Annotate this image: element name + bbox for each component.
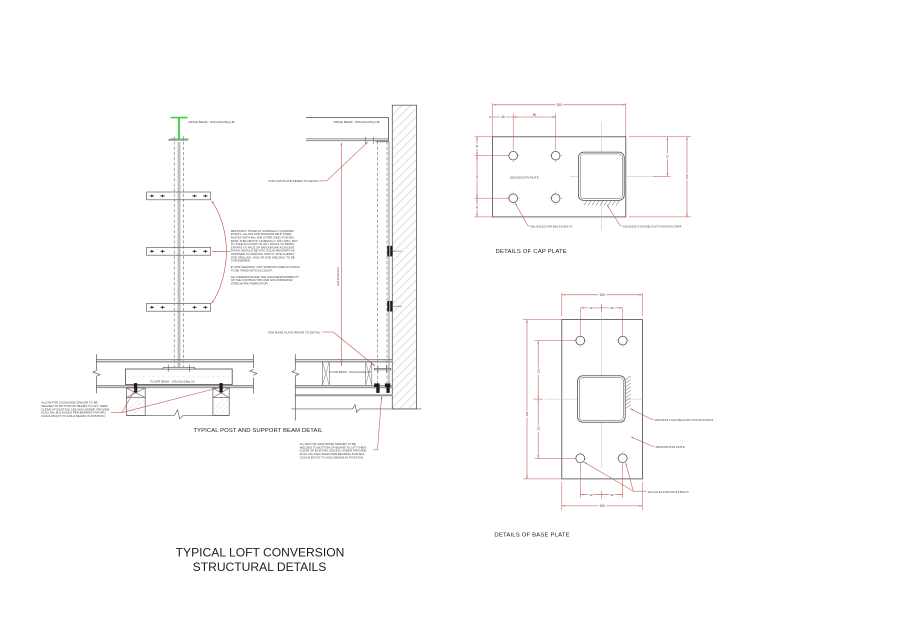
svg-text:100X100X6.3 SHS WELD INTO POSI: 100X100X6.3 SHS WELD INTO POSITION STAFF — [623, 224, 682, 228]
svg-text:FOR CAP PLATE REFER TO DETAIL: FOR CAP PLATE REFER TO DETAIL — [268, 179, 319, 183]
svg-text:150: 150 — [600, 504, 606, 508]
svg-text:40: 40 — [610, 306, 614, 310]
svg-text:90: 90 — [533, 113, 537, 117]
svg-text:300X150X15TH PLATE: 300X150X15TH PLATE — [655, 445, 684, 449]
svg-text:4No HOLES FOR M16 8.8 BOLTS: 4No HOLES FOR M16 8.8 BOLTS — [530, 224, 572, 228]
svg-text:300: 300 — [525, 411, 529, 416]
svg-text:40: 40 — [589, 306, 593, 310]
svg-text:40: 40 — [610, 493, 614, 497]
svg-text:75: 75 — [665, 155, 669, 159]
svg-text:150: 150 — [600, 293, 606, 297]
svg-text:DETAILS OF CAP PLATE: DETAILS OF CAP PLATE — [496, 249, 567, 255]
svg-text:100X100X6.3 SHS WELD INTO POSI: 100X100X6.3 SHS WELD INTO POSITION STAFF — [655, 418, 714, 422]
svg-text:TO BE TAKEN INTO ACCOUNT.: TO BE TAKEN INTO ACCOUNT. — [231, 268, 273, 272]
svg-text:250X150X12TH PLATE: 250X150X12TH PLATE — [510, 175, 539, 179]
svg-text:FLOOR BEAM - 152x152x23kg UC: FLOOR BEAM - 152x152x23kg UC — [329, 370, 371, 374]
svg-text:40: 40 — [501, 115, 505, 119]
svg-text:80: 80 — [475, 175, 479, 179]
svg-text:4No HOLES FOR M16 8.8 BOLTS: 4No HOLES FOR M16 8.8 BOLTS — [648, 490, 689, 494]
svg-text:CONSIDERED.: CONSIDERED. — [231, 259, 251, 263]
svg-text:wall dimension: wall dimension — [336, 267, 340, 286]
svg-text:RIDGE BEAM - 203x102x23kg UB: RIDGE BEAM - 203x102x23kg UB — [189, 120, 235, 124]
svg-text:FOR BASE PLATE REFER TO DETAIL: FOR BASE PLATE REFER TO DETAIL — [268, 330, 321, 334]
svg-text:35: 35 — [475, 144, 479, 148]
svg-text:TYPICAL POST AND SUPPORT BEAM: TYPICAL POST AND SUPPORT BEAM DETAIL — [193, 428, 323, 434]
svg-text:DETAILS OF BASE PLATE: DETAILS OF BASE PLATE — [494, 533, 569, 539]
svg-text:FLOOR BEAM - 152x152x23kg UC: FLOOR BEAM - 152x152x23kg UC — [150, 379, 195, 383]
svg-text:110: 110 — [536, 368, 540, 373]
svg-text:40: 40 — [589, 493, 593, 497]
svg-text:250: 250 — [557, 103, 563, 107]
svg-text:110: 110 — [536, 426, 540, 431]
svg-text:STEELWORK FABRICATOR.: STEELWORK FABRICATOR. — [231, 281, 269, 285]
svg-text:STRUCTURAL DETAILS: STRUCTURAL DETAILS — [193, 560, 327, 574]
svg-text:150: 150 — [685, 174, 689, 179]
svg-text:RIDGE BEAM - 203x102x23kg UB: RIDGE BEAM - 203x102x23kg UB — [334, 120, 380, 124]
svg-text:35: 35 — [475, 206, 479, 210]
svg-text:COACH BOLTS TO HOLD BEAMS IN P: COACH BOLTS TO HOLD BEAMS IN POSITION. — [41, 414, 105, 418]
svg-text:COACH BOLTS TO HOLD BEAMS IN P: COACH BOLTS TO HOLD BEAMS IN POSITION. — [300, 455, 364, 459]
svg-text:TYPICAL LOFT CONVERSION: TYPICAL LOFT CONVERSION — [176, 545, 345, 559]
